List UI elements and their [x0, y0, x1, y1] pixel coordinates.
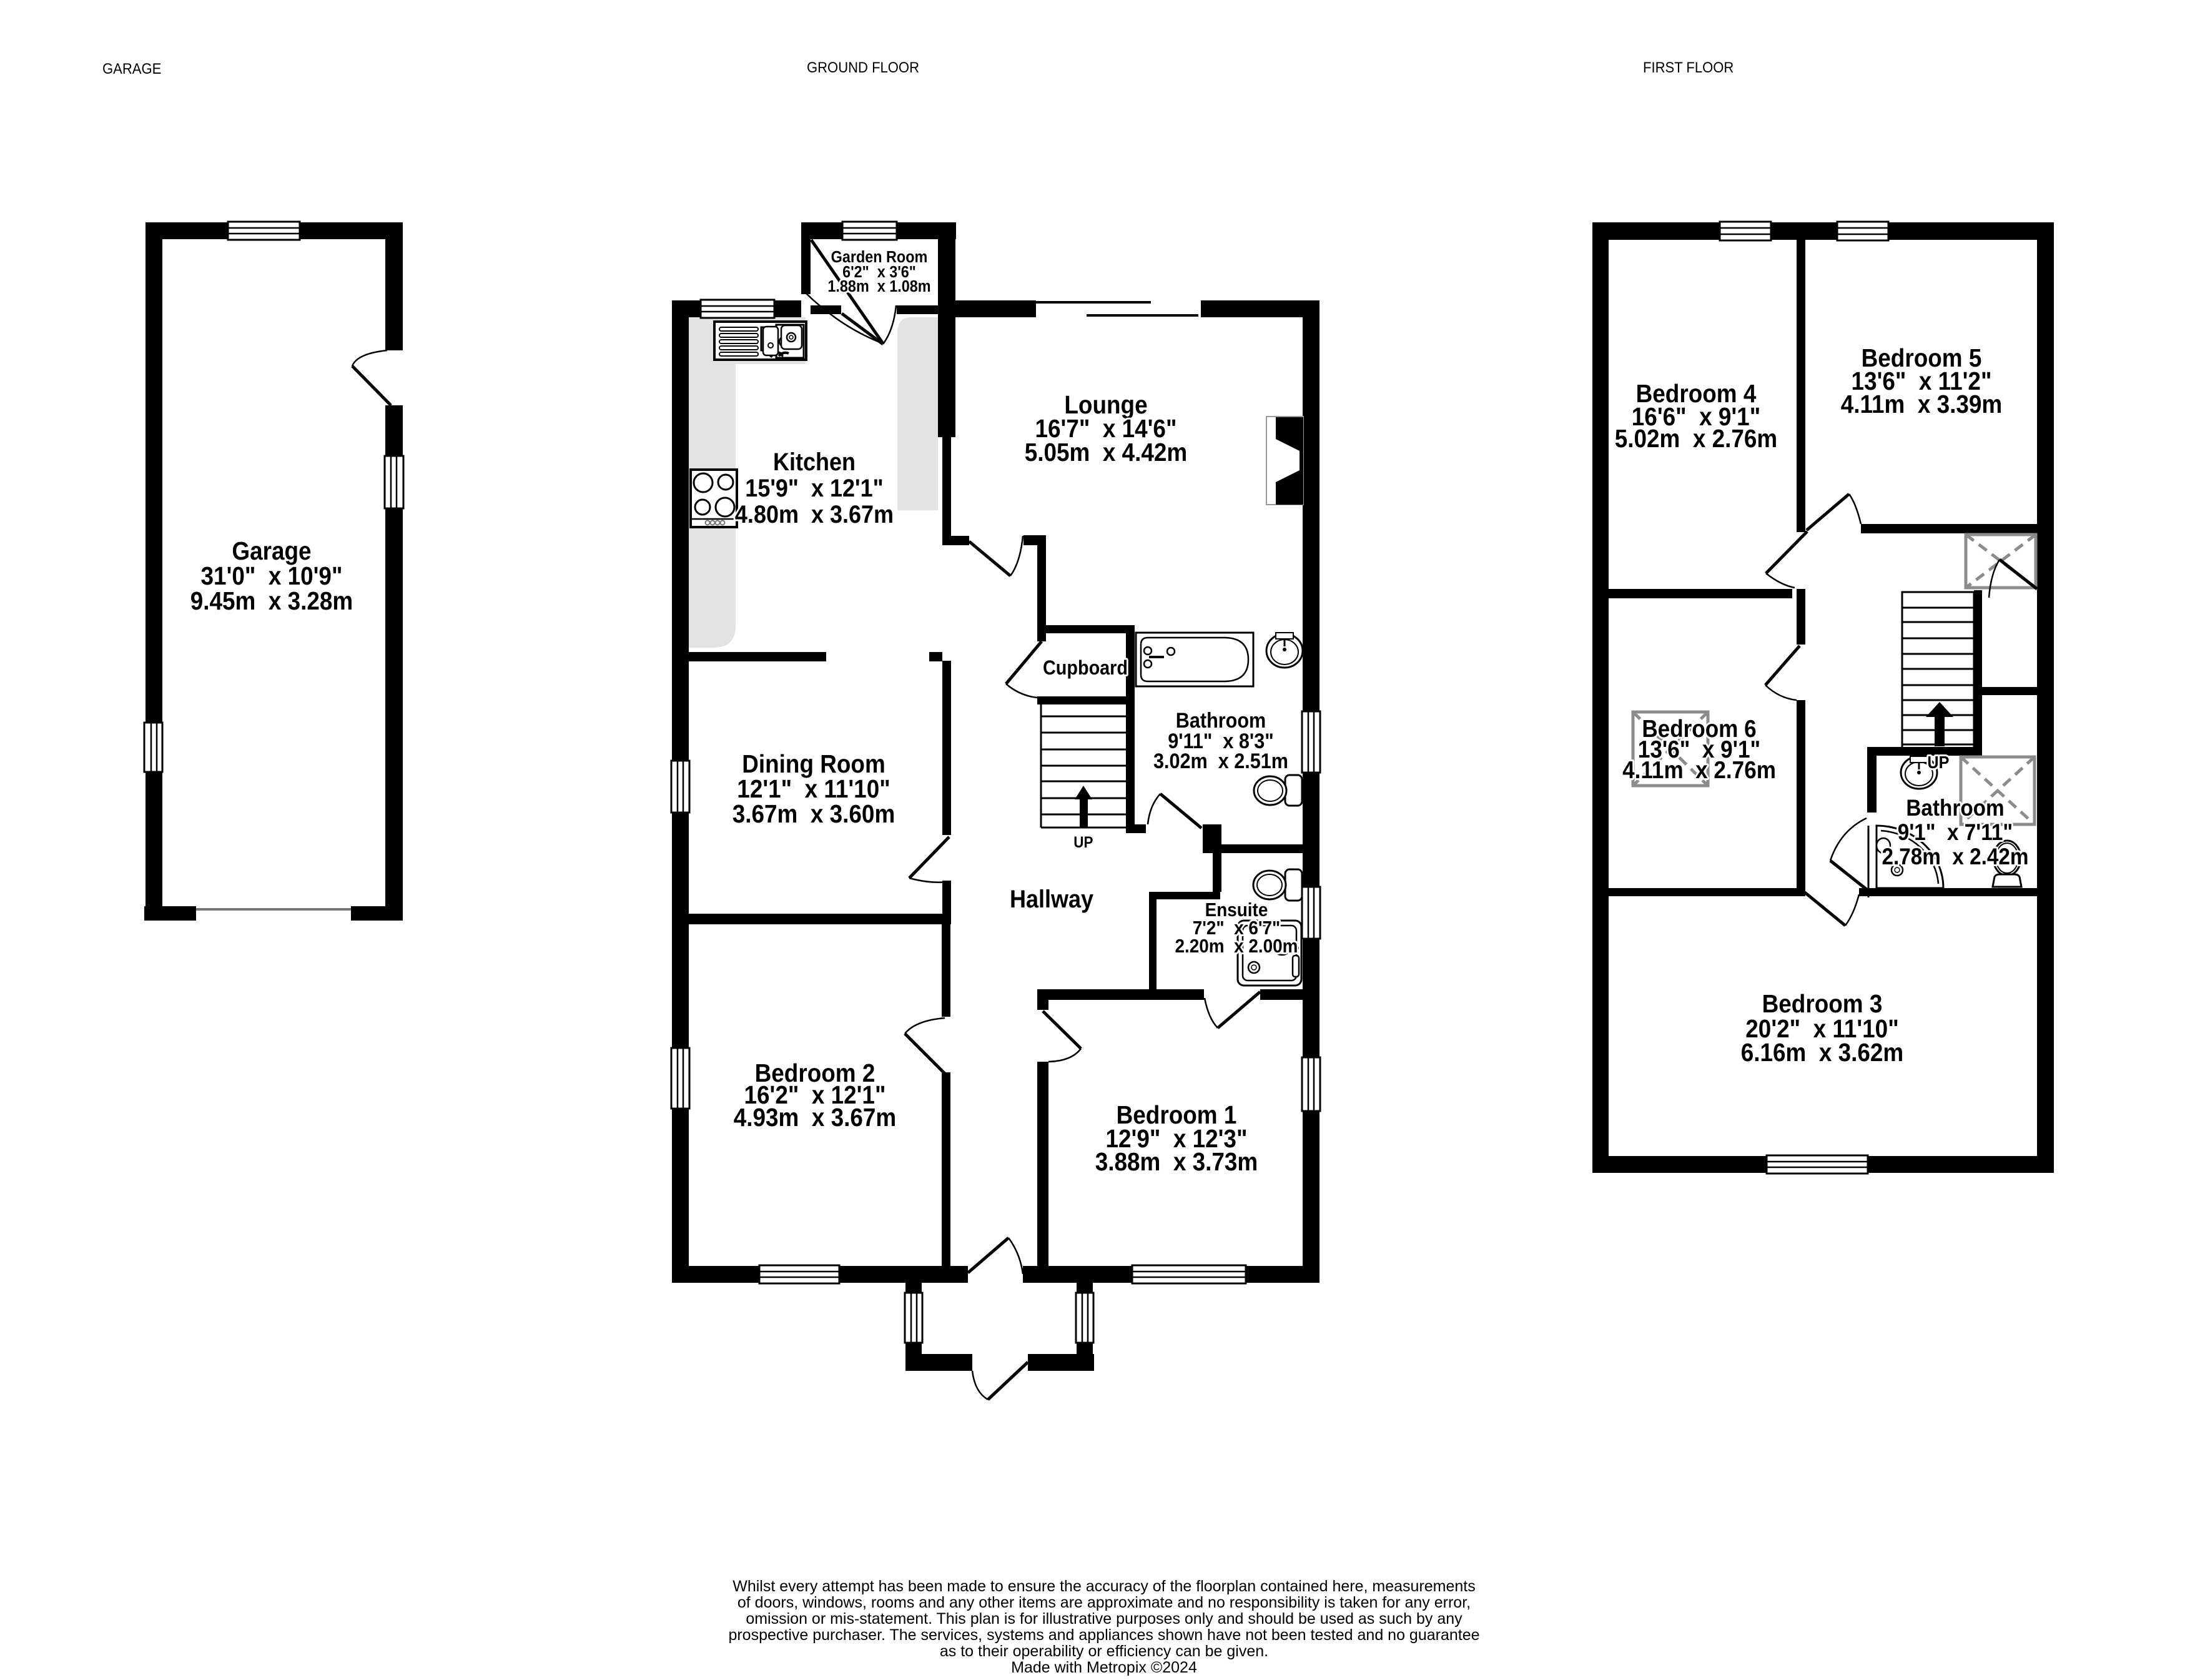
- svg-text:3.88m x 3.73m: 3.88m x 3.73m: [1095, 1148, 1258, 1176]
- svg-text:omission or mis-statement. Thi: omission or mis-statement. This plan is …: [746, 1610, 1462, 1628]
- svg-text:UP: UP: [1927, 753, 1949, 773]
- svg-text:as to their operability or eff: as to their operability or efficiency ca…: [940, 1643, 1268, 1660]
- svg-text:1.88m x 1.08m: 1.88m x 1.08m: [827, 278, 930, 295]
- svg-text:2.78m x 2.42m: 2.78m x 2.42m: [1882, 844, 2028, 869]
- svg-text:4.80m x 3.67m: 4.80m x 3.67m: [735, 501, 894, 528]
- svg-text:FIRST FLOOR: FIRST FLOOR: [1643, 59, 1734, 76]
- svg-text:Kitchen: Kitchen: [773, 448, 856, 476]
- svg-text:3.02m x 2.51m: 3.02m x 2.51m: [1153, 749, 1288, 773]
- svg-text:4.93m x 3.67m: 4.93m x 3.67m: [734, 1104, 897, 1132]
- svg-text:3.67m x 3.60m: 3.67m x 3.60m: [732, 800, 895, 828]
- svg-text:5.02m x 2.76m: 5.02m x 2.76m: [1615, 425, 1778, 453]
- svg-text:of doors, windows, rooms and a: of doors, windows, rooms and any other i…: [737, 1594, 1471, 1611]
- svg-text:4.11m x 2.76m: 4.11m x 2.76m: [1622, 756, 1776, 783]
- svg-text:GARAGE: GARAGE: [102, 60, 161, 77]
- svg-text:5.05m x 4.42m: 5.05m x 4.42m: [1025, 438, 1188, 467]
- svg-text:Made with Metropix ©2024: Made with Metropix ©2024: [1011, 1659, 1197, 1676]
- svg-text:12'1" x 11'10": 12'1" x 11'10": [737, 775, 890, 803]
- svg-text:Hallway: Hallway: [1010, 886, 1093, 913]
- svg-text:Cupboard: Cupboard: [1043, 657, 1128, 679]
- svg-text:UP: UP: [1073, 834, 1093, 851]
- svg-text:Whilst every attempt has been: Whilst every attempt has been made to en…: [732, 1578, 1476, 1595]
- svg-text:15'9" x 12'1": 15'9" x 12'1": [745, 475, 883, 502]
- svg-text:6.16m x 3.62m: 6.16m x 3.62m: [1741, 1039, 1904, 1067]
- svg-text:31'0" x 10'9": 31'0" x 10'9": [201, 562, 343, 590]
- svg-text:2.20m x 2.00m: 2.20m x 2.00m: [1175, 936, 1298, 957]
- svg-text:Bedroom 3: Bedroom 3: [1762, 990, 1883, 1018]
- svg-text:9.45m x 3.28m: 9.45m x 3.28m: [190, 587, 353, 615]
- svg-text:Bathroom: Bathroom: [1906, 795, 2004, 821]
- svg-text:Garage: Garage: [232, 537, 311, 565]
- svg-text:4.11m x 3.39m: 4.11m x 3.39m: [1841, 390, 2002, 418]
- svg-text:Dining Room: Dining Room: [742, 750, 885, 778]
- svg-text:prospective purchaser. The ser: prospective purchaser. The services, sys…: [728, 1626, 1479, 1644]
- svg-text:GROUND FLOOR: GROUND FLOOR: [807, 59, 919, 76]
- svg-text:9'1" x 7'11": 9'1" x 7'11": [1898, 819, 2013, 845]
